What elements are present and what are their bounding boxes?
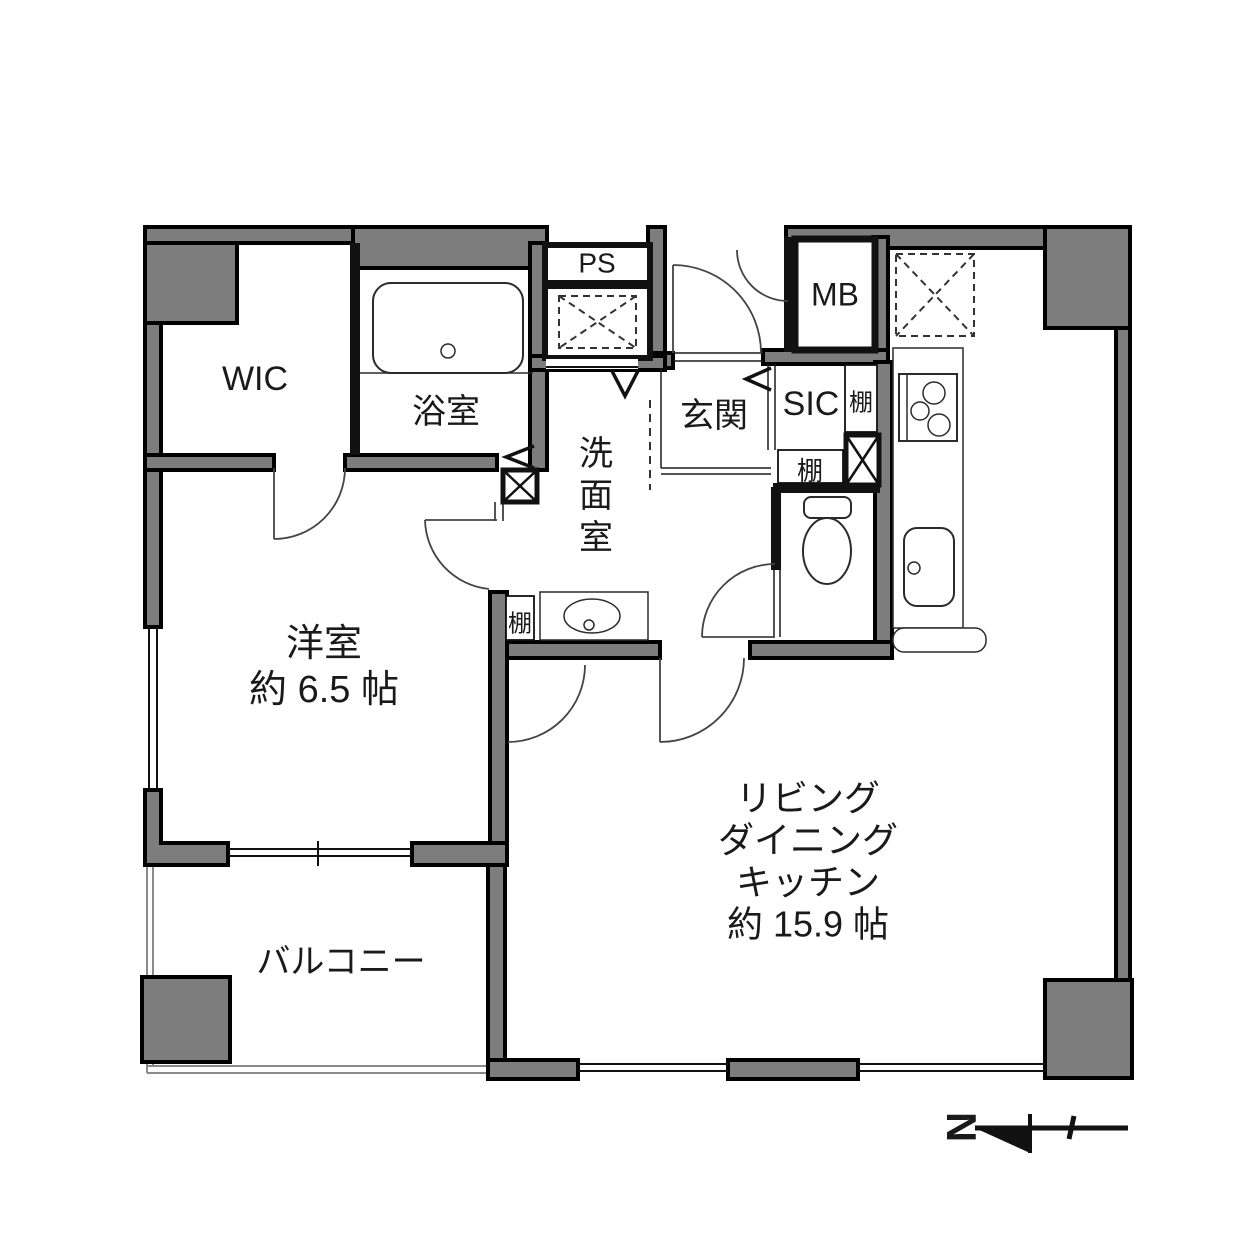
room-label-ps: PS — [578, 247, 615, 278]
kitchen-sink-icon — [904, 528, 954, 606]
vanity-sink-icon — [540, 592, 648, 640]
room-label-genkan: 玄関 — [680, 397, 748, 435]
washroom-top-window — [546, 357, 638, 369]
shelf-label-2: 棚 — [797, 456, 823, 486]
toilet-icon — [803, 497, 851, 584]
room-label-ldk-area: 約 15.9 帖 — [727, 904, 889, 945]
floor-plan-canvas: N WIC 浴室 PS MB 玄関 SIC 洗 面 室 洋室 約 6.5 帖 リ… — [0, 0, 1252, 1252]
room-label-mb: MB — [811, 276, 859, 312]
room-label-washroom-1: 洗 — [579, 435, 613, 473]
room-label-ldk-2: ダイニング — [718, 820, 898, 861]
room-label-bedroom-area: 約 6.5 帖 — [249, 669, 399, 711]
stove-icon — [899, 374, 957, 441]
shelf-label-1: 棚 — [849, 389, 873, 416]
room-label-washroom-3: 室 — [579, 519, 613, 557]
room-label-bedroom: 洋室 — [286, 623, 362, 665]
room-label-bathroom: 浴室 — [412, 393, 480, 431]
room-label-washroom-2: 面 — [579, 477, 613, 515]
floor-plan: N WIC 浴室 PS MB 玄関 SIC 洗 面 室 洋室 約 6.5 帖 リ… — [0, 0, 1252, 1252]
north-arrow-icon: N — [938, 1112, 1128, 1153]
north-label: N — [938, 1112, 985, 1142]
room-label-ldk-3: キッチン — [736, 862, 880, 903]
room-label-wic: WIC — [222, 360, 288, 398]
kitchen-shaft-icon — [896, 254, 974, 336]
bathtub-icon — [360, 283, 533, 373]
room-label-ldk-1: リビング — [736, 778, 880, 819]
room-label-sic: SIC — [783, 385, 840, 423]
room-label-balcony: バルコニー — [256, 943, 425, 981]
shelf-label-3: 棚 — [508, 610, 532, 637]
